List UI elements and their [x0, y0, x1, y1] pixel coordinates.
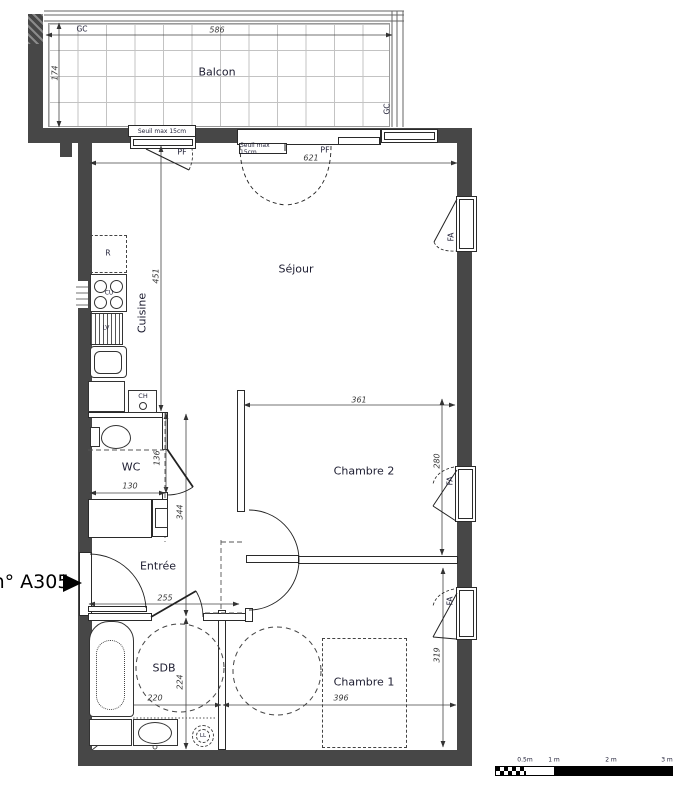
kitchen-label: Cuisine — [136, 293, 149, 333]
fa-living-label: FA — [447, 233, 456, 242]
dim-bedroom2-width: 361 — [351, 396, 366, 405]
dim-bedroom2-depth: 280 — [433, 453, 442, 468]
dim-wc-depth: 136 — [153, 450, 162, 465]
balcony-label: Balcon — [198, 66, 235, 79]
electrical-panel — [155, 508, 168, 528]
fridge-label: R — [105, 249, 110, 258]
washbasin-bowl — [138, 722, 172, 744]
closet-box — [88, 499, 152, 538]
gc-label-top: GC — [76, 25, 87, 34]
scale-label-2m: 2 m — [605, 757, 617, 764]
toilet-tank — [90, 427, 100, 447]
dim-balcony-width: 586 — [209, 26, 224, 35]
scale-label-05m: 0.5m — [517, 757, 532, 764]
dim-bedroom1-width: 396 — [333, 694, 348, 703]
scale-seg-black1 — [554, 767, 611, 775]
scale-label-3m: 3 m — [661, 757, 673, 764]
burner-icon — [94, 296, 107, 309]
dim-bathroom-width: 220 — [147, 694, 162, 703]
cooktop-label: CU — [105, 290, 114, 297]
fa-bedroom1-label: FA — [446, 597, 455, 606]
pf2-label: PF — [320, 146, 329, 155]
dim-bedroom1-depth: 319 — [433, 647, 442, 662]
scale-seg-checker — [496, 767, 526, 775]
scale-bar-rule — [495, 766, 673, 776]
sink-basin — [94, 351, 122, 374]
pf1-label: PF — [177, 148, 186, 157]
scale-bar: 0.5m 1 m 2 m 3 m — [495, 754, 691, 780]
dishwasher-label: LV — [103, 325, 110, 332]
fa-bedroom2-label: FA — [446, 477, 455, 486]
scale-seg-white — [526, 767, 554, 775]
dim-wc-width: 130 — [122, 482, 137, 491]
floor-plan: Seuil max 15cm Seuil max 15cm — [0, 0, 691, 800]
toilet-bowl — [101, 425, 131, 449]
boiler-label: CH — [138, 392, 147, 400]
shaft-ticks — [76, 287, 88, 305]
bedroom1-label: Chambre 1 — [334, 676, 395, 689]
boiler-dial-icon — [139, 402, 147, 410]
dim-bathroom-depth: 224 — [176, 674, 185, 689]
dim-balcony-depth: 174 — [51, 65, 60, 80]
scale-label-1m: 1 m — [548, 757, 560, 764]
dim-hall-length: 344 — [176, 504, 185, 519]
bedroom2-label: Chambre 2 — [334, 465, 395, 478]
living-label: Séjour — [278, 263, 313, 276]
bath-corner-unit — [89, 719, 132, 746]
dim-kitchen-depth: 451 — [152, 268, 161, 283]
scale-seg-black2 — [611, 767, 672, 775]
kitchen-counter — [88, 381, 125, 412]
wc-label: WC — [122, 461, 141, 474]
bathtub-basin — [96, 640, 125, 710]
dim-entry-width: 255 — [157, 594, 172, 603]
washer-label: LL — [200, 733, 206, 739]
gc-label-right: GC — [383, 103, 392, 114]
burner-icon — [110, 296, 123, 309]
unit-label: n° A305 — [0, 571, 69, 593]
entry-label: Entrée — [140, 560, 176, 573]
bathroom-label: SDB — [153, 662, 176, 675]
dim-living-width: 621 — [303, 154, 318, 163]
